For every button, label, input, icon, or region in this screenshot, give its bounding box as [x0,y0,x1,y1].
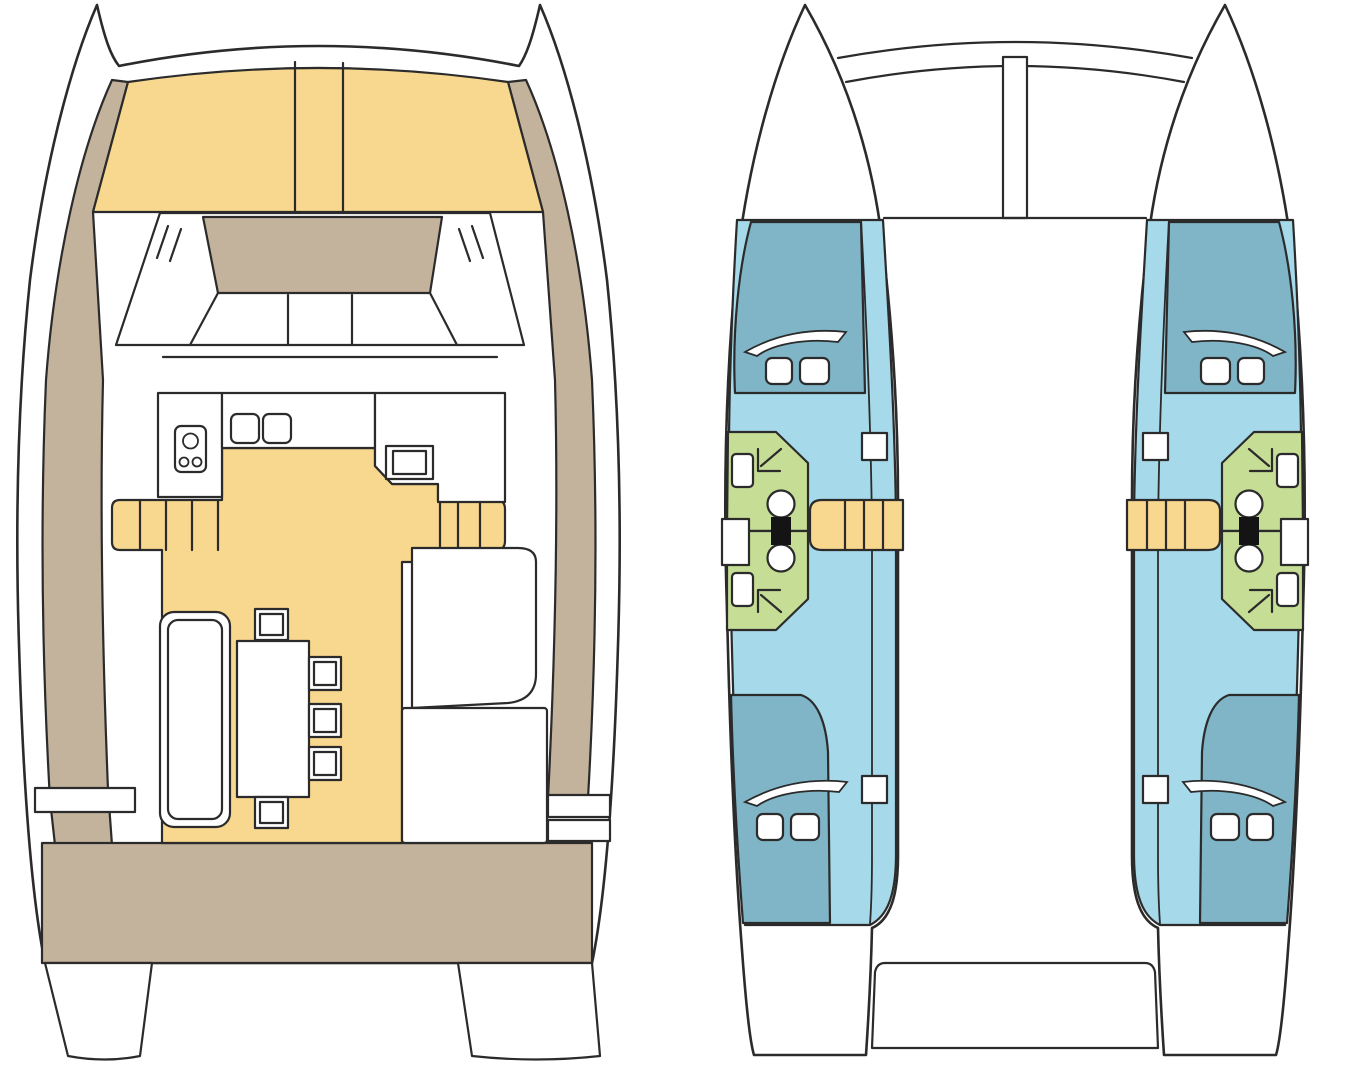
deck-hatch [791,814,819,840]
bathroom-sink-aft [732,573,753,606]
toilet-aft [768,531,795,572]
aft-cockpit-recess [872,963,1158,1048]
deck-hatch [800,358,829,384]
transom-port [45,963,152,1060]
starboard-hull [1127,5,1308,1055]
boarding-gate-port [35,788,135,812]
nav-seat-aft [402,708,547,843]
bridge-connection-aft [862,776,887,803]
hull-plan-view [722,5,1308,1055]
catamaran-floorplan [0,0,1345,1080]
boarding-gate-starboard-2 [548,820,610,841]
boarding-gate-starboard-1 [548,795,610,817]
dinette-table [237,641,309,797]
dinette-chair [309,704,341,737]
floorplan-canvas [0,0,1345,1080]
transom-starboard [458,963,600,1060]
dinette-chair [309,657,341,690]
deck-hatch [766,358,792,384]
stove [175,426,206,472]
galley-sink-left [231,414,259,443]
crossbeam-arc-forward [838,42,1192,58]
aft-cockpit-deck [42,843,592,963]
deck-hatch [757,814,783,840]
dinette-chair [255,609,288,640]
dinette-chair [309,747,341,780]
dinette-chair [255,797,288,828]
galley-sink-right [263,414,291,443]
bathroom-sink-forward [732,454,753,487]
sofa-bench-inner [168,620,222,819]
coachroof-top [203,217,442,293]
port-hull [722,5,903,1055]
deck-plan-view [17,5,619,1060]
aft-berth [731,695,830,923]
sink-unit [386,446,433,479]
toilet-forward [768,491,795,532]
bathroom-landing [722,519,749,565]
nav-seat-forward [412,548,536,708]
mast-support-column [1003,57,1027,218]
companionway-steps [810,500,903,550]
foredeck-sunpad [93,68,543,212]
bridge-connection-forward [862,433,887,460]
